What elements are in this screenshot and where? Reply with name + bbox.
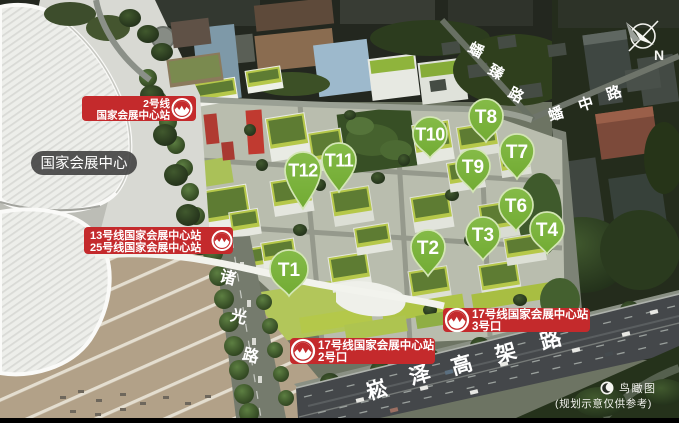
svg-text:国家会展中心站: 国家会展中心站: [97, 109, 171, 122]
svg-text:T2: T2: [417, 238, 439, 259]
svg-text:T12: T12: [288, 161, 318, 181]
svg-text:3号口: 3号口: [472, 320, 501, 333]
svg-text:T1: T1: [278, 260, 301, 281]
svg-text:17号线国家会展中心站: 17号线国家会展中心站: [472, 307, 589, 321]
svg-text:2号线: 2号线: [143, 97, 170, 110]
svg-text:T6: T6: [505, 196, 527, 217]
svg-text:13号线国家会展中心站: 13号线国家会展中心站: [90, 228, 201, 242]
svg-text:T10: T10: [415, 125, 445, 145]
svg-text:T8: T8: [475, 107, 497, 128]
svg-text:T9: T9: [462, 157, 484, 178]
svg-text:N: N: [654, 47, 664, 63]
svg-text:25号线国家会展中心站: 25号线国家会展中心站: [90, 240, 201, 254]
svg-text:国家会展中心: 国家会展中心: [41, 155, 128, 172]
svg-text:(规划示意仅供参考): (规划示意仅供参考): [555, 397, 652, 410]
svg-text:T4: T4: [536, 220, 559, 241]
svg-text:鸟瞰图: 鸟瞰图: [619, 381, 657, 395]
svg-text:T7: T7: [506, 142, 528, 163]
svg-text:17号线国家会展中心站: 17号线国家会展中心站: [318, 338, 435, 352]
svg-text:T11: T11: [325, 151, 354, 171]
svg-text:2号口: 2号口: [318, 351, 347, 364]
svg-text:T3: T3: [472, 225, 494, 246]
